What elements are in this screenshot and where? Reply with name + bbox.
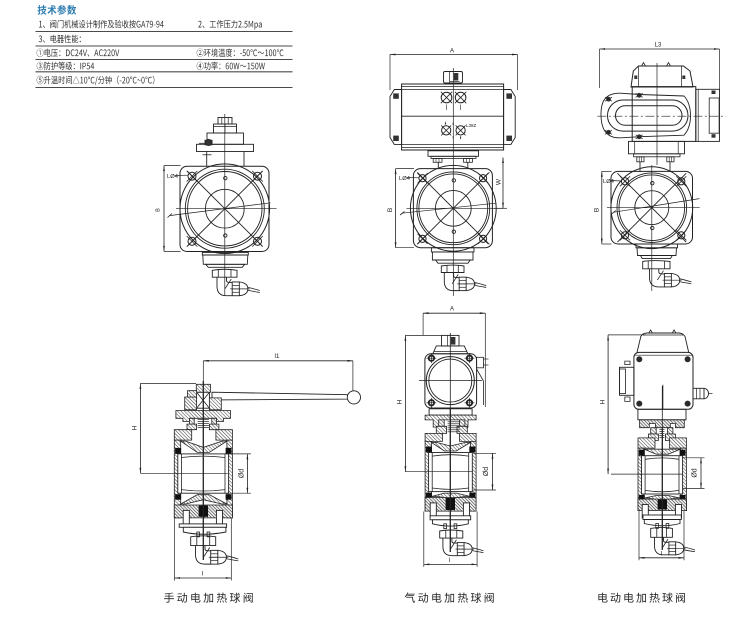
svg-text:l1: l1 [274, 353, 279, 360]
svg-text:Ød: Ød [692, 468, 699, 477]
svg-text:LØ4: LØ4 [399, 176, 411, 182]
svg-text:Ød: Ød [483, 467, 490, 476]
svg-text:Ød: Ød [238, 469, 245, 478]
svg-text:B: B [593, 208, 600, 212]
svg-text:H: H [397, 399, 404, 404]
svg-text:LØ4: LØ4 [167, 174, 179, 180]
svg-text:B: B [156, 208, 162, 212]
svg-text:A: A [450, 49, 454, 55]
svg-text:LØ4: LØ4 [603, 179, 615, 185]
svg-text:H: H [132, 425, 139, 430]
svg-text:H: H [599, 399, 606, 404]
svg-text:L38Z: L38Z [466, 123, 477, 128]
svg-text:A: A [450, 307, 454, 313]
svg-text:W: W [496, 178, 503, 185]
svg-text:B: B [387, 208, 394, 212]
svg-text:L3: L3 [655, 43, 662, 49]
